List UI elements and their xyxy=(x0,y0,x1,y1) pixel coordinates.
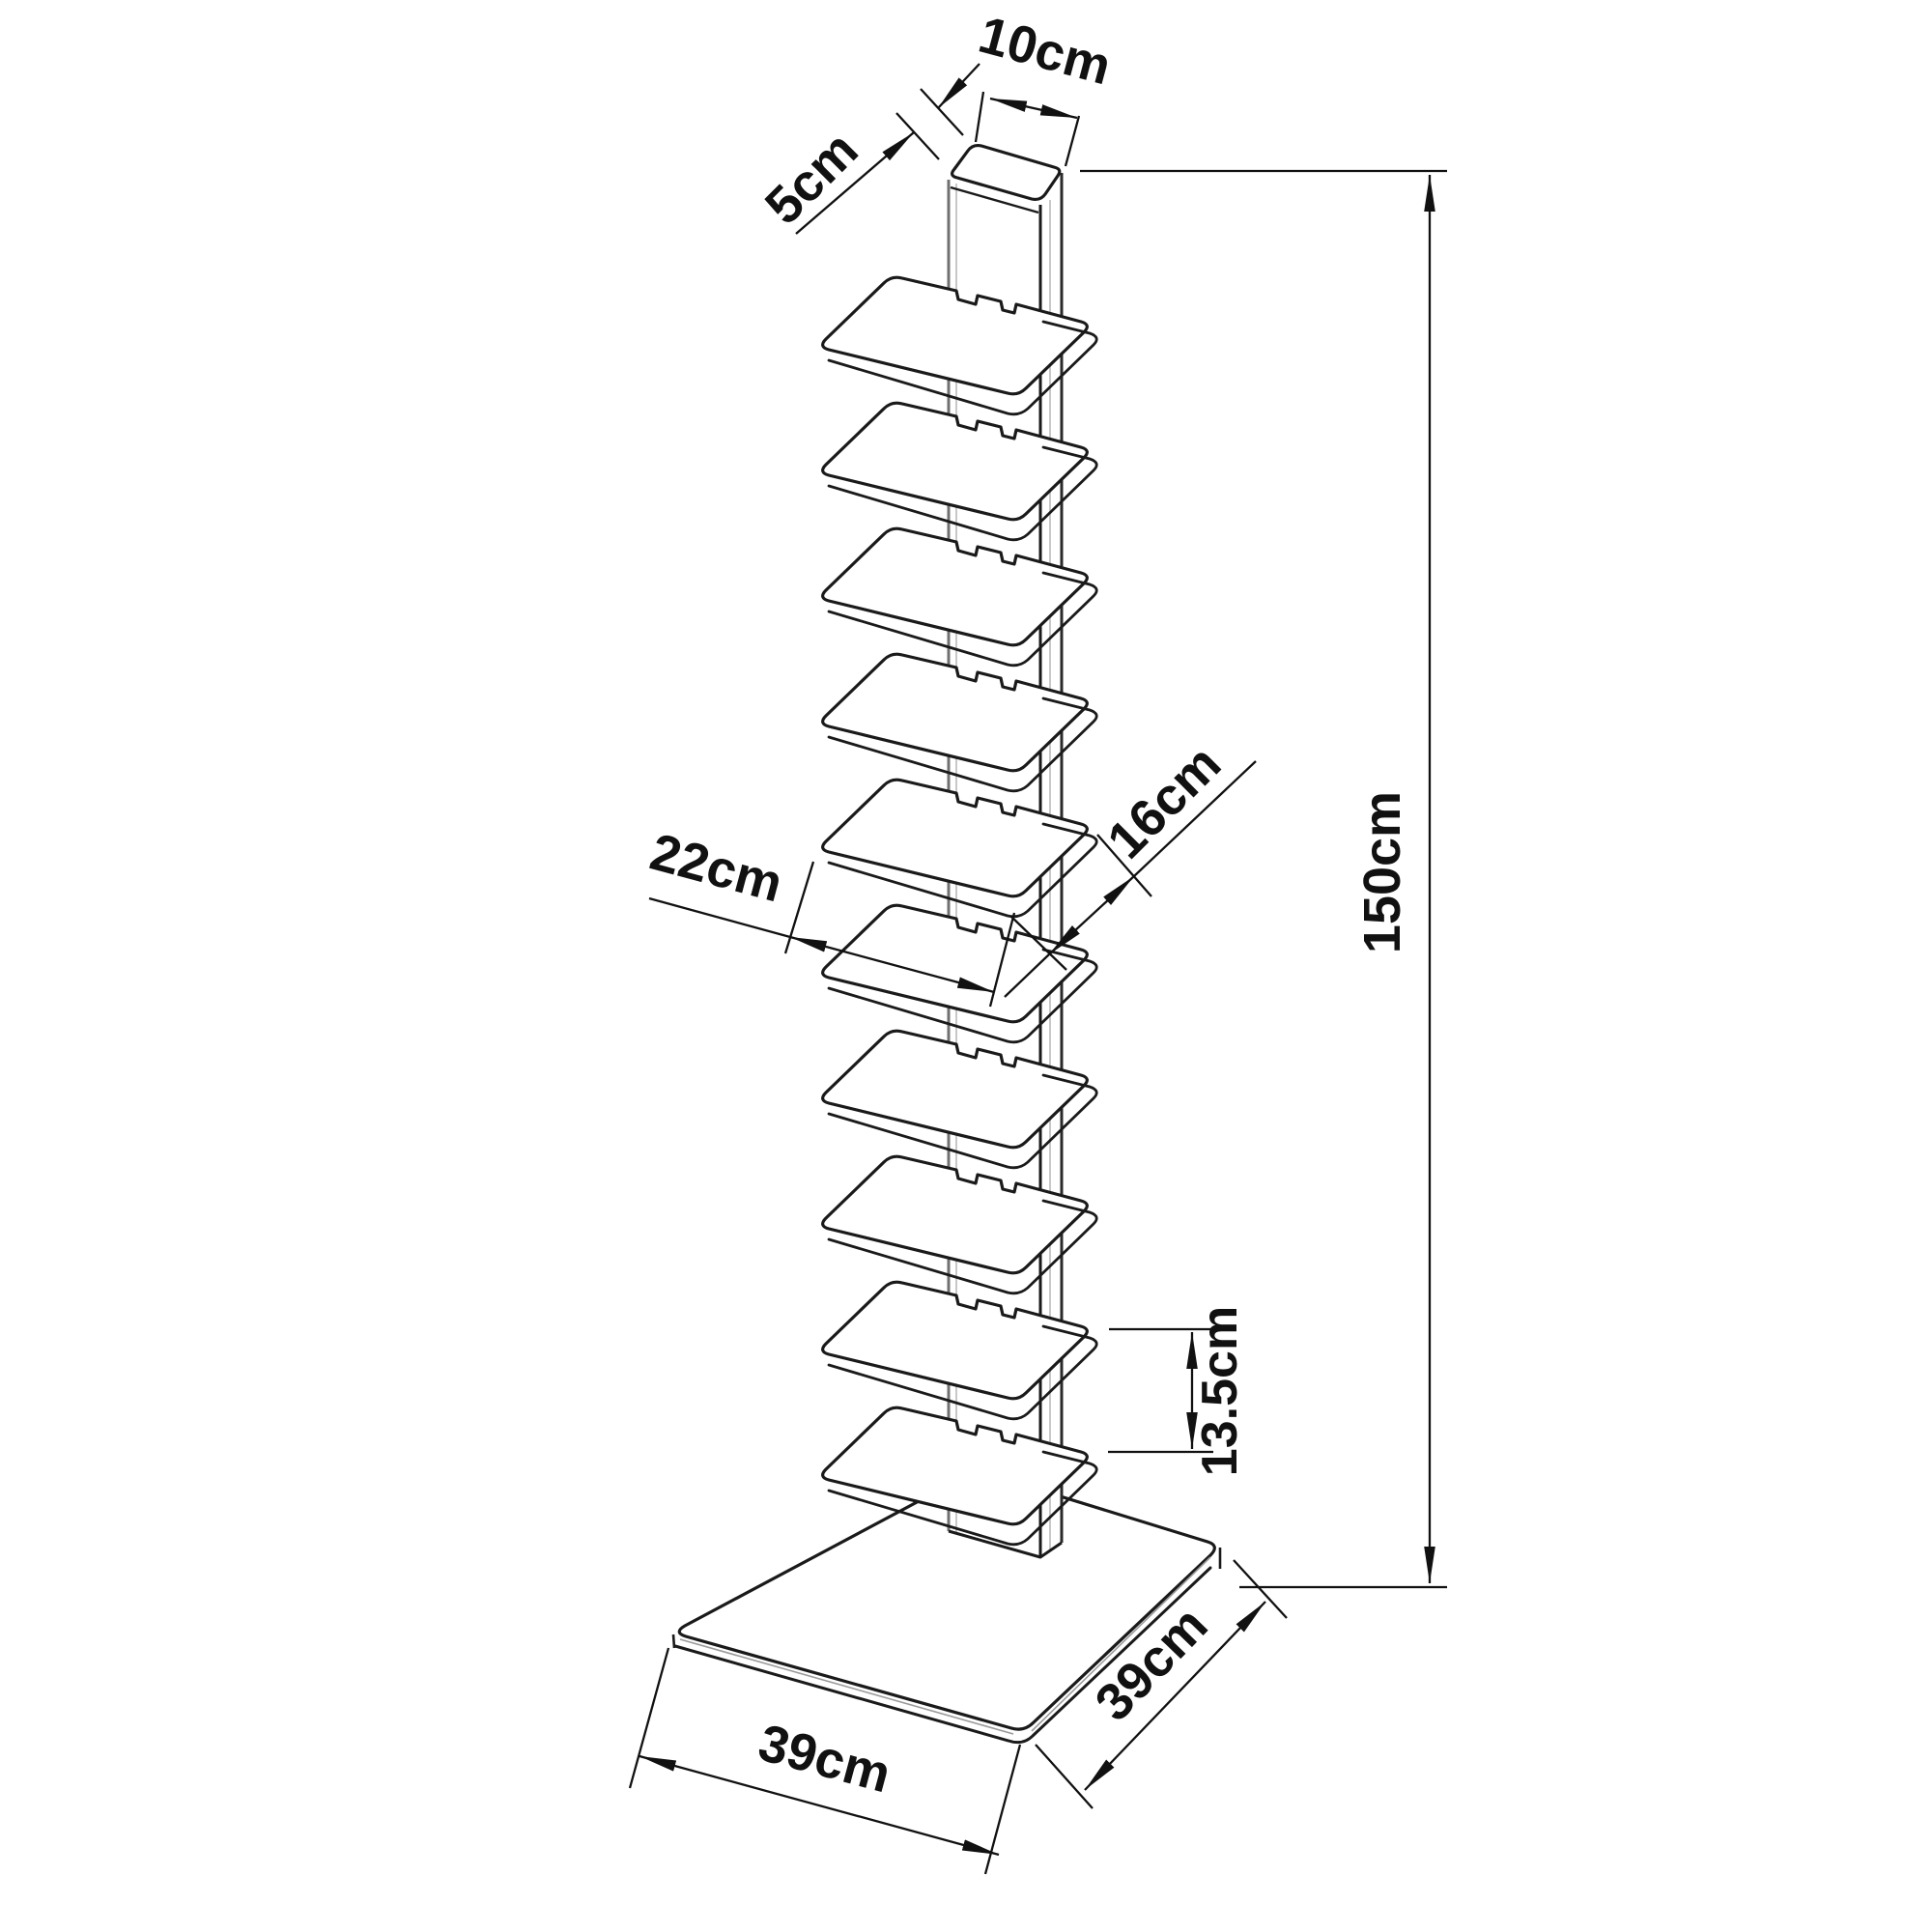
diagram-canvas: 10cm 5cm 150cm 16cm 22cm 13.5cm xyxy=(0,0,1932,1932)
dim-post-width-ext-right xyxy=(1065,116,1079,166)
dim-base-side-ext-upper xyxy=(1234,1560,1287,1618)
dim-base-side-ext-lower xyxy=(1036,1745,1093,1808)
dim-base-front-ext-left xyxy=(630,1648,668,1788)
dim-post-depth-label: 5cm xyxy=(754,121,869,236)
dim-post-depth-tick-front xyxy=(896,113,939,159)
dim-post-depth-leader-upper xyxy=(938,64,980,108)
dim-base-front-ext-right xyxy=(985,1745,1020,1874)
dim-post-width-ext-left xyxy=(976,92,983,142)
dim-post-depth-tick-back xyxy=(921,89,963,135)
dim-height-label: 150cm xyxy=(1353,791,1411,953)
dim-post-width-line xyxy=(990,99,1077,118)
dim-base-front-label: 39cm xyxy=(753,1714,896,1804)
dim-post-width-label: 10cm xyxy=(973,6,1117,97)
base-corner-tick-left xyxy=(673,1634,674,1648)
dim-shelf-width-label: 22cm xyxy=(644,823,788,914)
bookshelf-dimension-diagram: 10cm 5cm 150cm 16cm 22cm 13.5cm xyxy=(0,0,1932,1932)
dim-spacing-label: 13.5cm xyxy=(1192,1306,1248,1476)
